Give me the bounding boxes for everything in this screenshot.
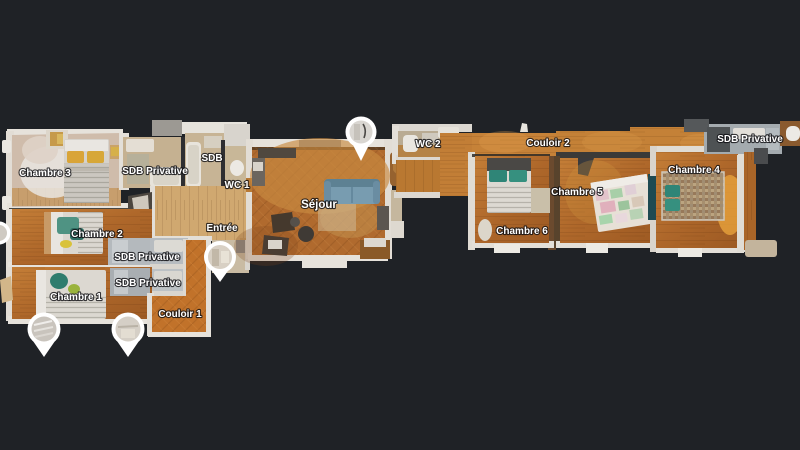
svg-text:Chambre 3: Chambre 3 (19, 168, 71, 179)
svg-text:Entrée: Entrée (206, 223, 238, 234)
svg-text:Chambre 4: Chambre 4 (668, 165, 720, 176)
svg-text:WC 2: WC 2 (416, 139, 441, 150)
svg-text:Chambre 2: Chambre 2 (71, 229, 123, 240)
svg-text:Chambre 6: Chambre 6 (496, 226, 548, 237)
svg-text:SDB Privative: SDB Privative (115, 278, 181, 289)
svg-text:SDB: SDB (201, 153, 222, 164)
svg-text:Chambre 1: Chambre 1 (50, 292, 102, 303)
svg-text:SDB Privative: SDB Privative (114, 252, 180, 263)
svg-text:SDB Privative: SDB Privative (717, 134, 783, 145)
svg-text:Couloir 2: Couloir 2 (526, 138, 570, 149)
svg-text:Chambre 5: Chambre 5 (551, 187, 603, 198)
svg-text:Séjour: Séjour (301, 199, 337, 211)
svg-text:SDB Privative: SDB Privative (122, 166, 188, 177)
svg-text:Couloir 1: Couloir 1 (158, 309, 202, 320)
svg-text:WC 1: WC 1 (225, 180, 250, 191)
